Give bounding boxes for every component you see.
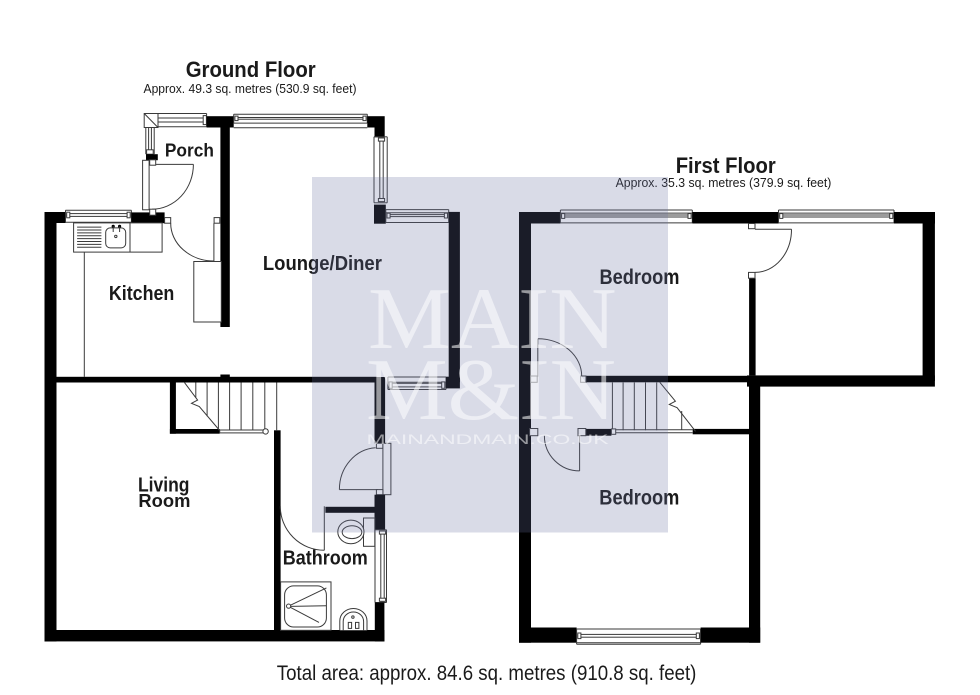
svg-text:Approx. 49.3 sq. metres (530.9: Approx. 49.3 sq. metres (530.9 sq. feet): [144, 81, 357, 96]
svg-text:Kitchen: Kitchen: [109, 283, 175, 305]
svg-text:Porch: Porch: [165, 140, 214, 160]
svg-text:Total area: approx. 84.6 sq. m: Total area: approx. 84.6 sq. metres (910…: [277, 662, 697, 685]
svg-text:M&IN: M&IN: [366, 342, 616, 439]
svg-text:Bathroom: Bathroom: [283, 547, 368, 569]
svg-text:Ground Floor: Ground Floor: [186, 57, 316, 82]
svg-text:MAINANDMAIN.CO.UK: MAINANDMAIN.CO.UK: [367, 431, 610, 447]
svg-text:Room: Room: [138, 491, 190, 511]
